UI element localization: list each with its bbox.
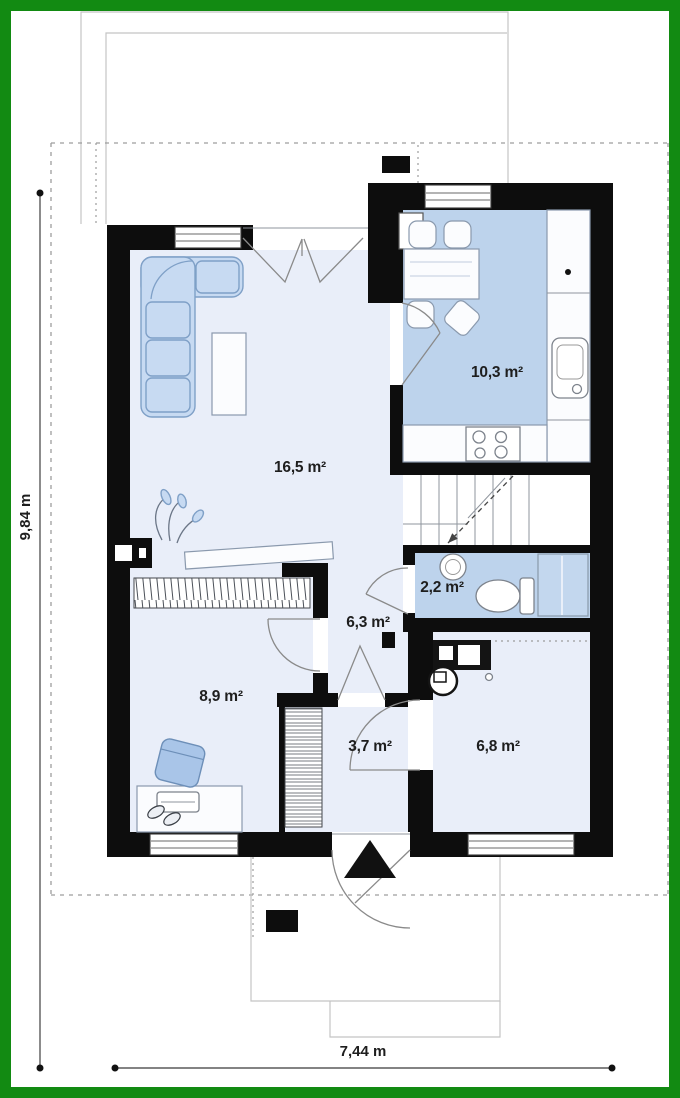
height-dimension-label: 9,84 m — [17, 494, 34, 541]
kitchen-sink — [552, 338, 588, 398]
bedroom-window — [150, 834, 238, 855]
living-room-window — [175, 227, 241, 248]
stairs-floor — [403, 475, 590, 545]
bedroom-area-label: 8,9 m² — [199, 688, 243, 705]
hall-area-label: 6,3 m² — [346, 614, 390, 631]
floor-plan-page: 16,5 m² 10,3 m² 2,2 m² 6,3 m² 8,9 m² 3,7… — [0, 0, 680, 1098]
utility-room-window — [468, 834, 574, 855]
shower — [538, 554, 588, 616]
living-room-area-label: 16,5 m² — [274, 459, 326, 476]
width-dimension-label: 7,44 m — [340, 1043, 387, 1060]
bathroom-area-label: 2,2 m² — [420, 579, 464, 596]
kitchen-area-label: 10,3 m² — [471, 364, 523, 381]
coffee-table — [212, 333, 246, 415]
terrace-chimney-block — [266, 910, 298, 932]
top-chimney-block — [382, 156, 410, 173]
toilet — [476, 578, 534, 614]
kitchen-counter-right — [547, 210, 590, 462]
bathroom-sink — [440, 554, 466, 580]
floor-plan-drawing: 16,5 m² 10,3 m² 2,2 m² 6,3 m² 8,9 m² 3,7… — [0, 0, 680, 1098]
entry-closet — [285, 708, 322, 827]
cooktop — [466, 427, 520, 461]
utility-room-area-label: 6,8 m² — [476, 738, 520, 755]
kitchen-window — [425, 185, 491, 208]
bedroom-wardrobe — [134, 578, 310, 608]
entry-area-label: 3,7 m² — [348, 738, 392, 755]
